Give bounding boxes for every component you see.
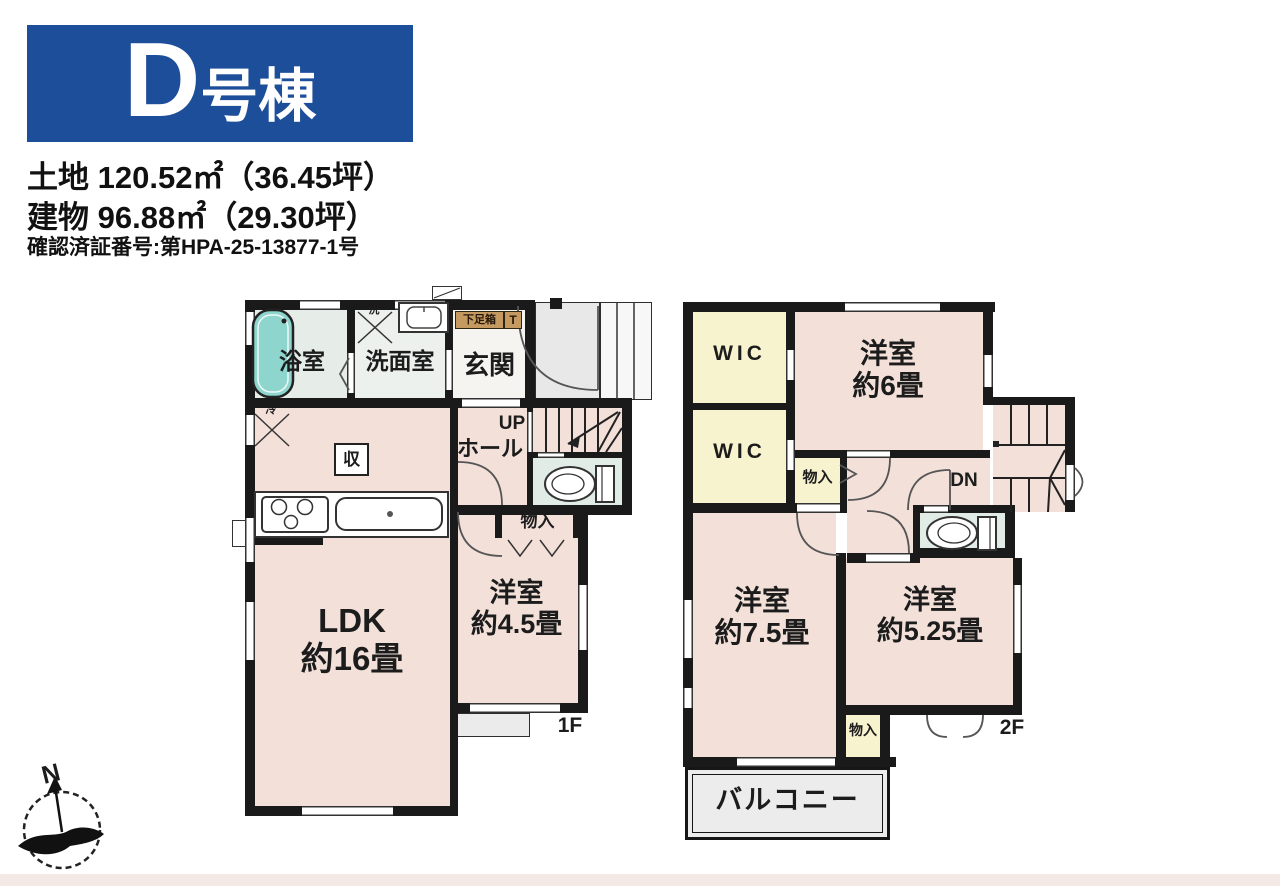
shoe-cabinet: 下足箱 — [455, 311, 504, 329]
room525-size: 約5.25畳 — [850, 616, 1010, 647]
wic2-label: WIC — [693, 440, 786, 464]
balcony-label: バルコニー — [700, 785, 875, 816]
closet-1f-label: 物入 — [500, 512, 575, 532]
ldk-name: LDK — [262, 602, 442, 640]
fridge-space-icon — [255, 414, 289, 446]
room75-label: 洋室 約7.5畳 — [692, 585, 832, 649]
kitchen-counter-icon — [255, 492, 448, 537]
floor1-label: 1F — [548, 714, 592, 738]
room6-name: 洋室 — [808, 338, 968, 370]
floor2-label: 2F — [990, 716, 1034, 740]
stairs-2f — [993, 405, 1065, 512]
toilet-icon-1f — [545, 466, 614, 502]
dn-label: DN — [944, 470, 984, 492]
bottom-edge-tint — [0, 874, 1280, 886]
ldk-label: LDK 約16畳 — [262, 602, 442, 678]
room525-label: 洋室 約5.25畳 — [850, 585, 1010, 647]
room45-label: 洋室 約4.5畳 — [455, 578, 578, 640]
room6-size: 約6畳 — [808, 370, 968, 402]
room45-size: 約4.5畳 — [455, 609, 578, 640]
room75-name: 洋室 — [692, 585, 832, 617]
closet-door-marks-1f — [508, 540, 564, 556]
storage-box-label: 収 — [336, 450, 367, 470]
closet-2f-lower-label: 物入 — [846, 722, 880, 738]
room525-name: 洋室 — [850, 585, 1010, 616]
porch-step-lines — [617, 303, 634, 399]
closet-2f-upper-label: 物入 — [795, 469, 840, 486]
washer-label: 洗 — [360, 304, 388, 317]
fridge-label: 冷 — [256, 404, 286, 417]
toilet-icon-2f — [927, 517, 996, 550]
entrance-label: 玄関 — [450, 351, 528, 381]
plan-linework — [0, 0, 1280, 886]
washroom-label: 洗面室 — [352, 348, 448, 374]
room75-size: 約7.5畳 — [692, 617, 832, 649]
wash-basin-icon — [399, 303, 448, 332]
bath-label: 浴室 — [262, 348, 342, 374]
floor-plan-page: D号棟 土地 120.52㎡（36.45坪） 建物 96.88㎡（29.30坪）… — [0, 0, 1280, 886]
stairs-1f — [546, 408, 622, 452]
water-heater-line — [434, 288, 460, 298]
hall-label: ホール — [450, 436, 530, 461]
washer-space-icon — [358, 312, 392, 343]
up-label: UP — [492, 413, 532, 435]
room6-label: 洋室 約6畳 — [808, 338, 968, 402]
wic1-label: WIC — [693, 342, 786, 366]
room45-name: 洋室 — [455, 578, 578, 609]
shoe-cabinet-t: T — [504, 311, 522, 329]
entrance-door-arc — [518, 306, 598, 390]
ldk-size: 約16畳 — [262, 640, 442, 678]
